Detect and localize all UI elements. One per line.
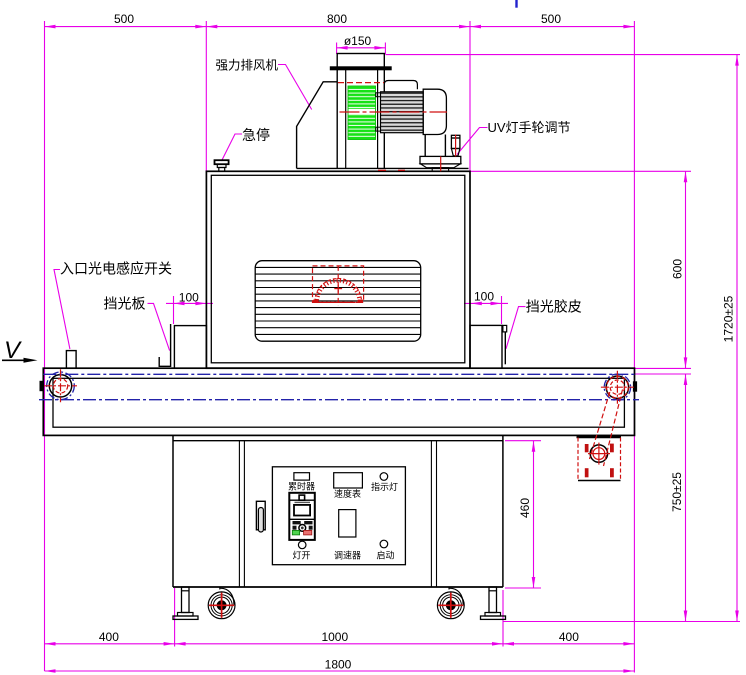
svg-text:1720±25: 1720±25 [722, 295, 736, 342]
svg-text:460: 460 [518, 498, 532, 518]
svg-text:1800: 1800 [325, 657, 352, 671]
svg-text:挡光胶皮: 挡光胶皮 [526, 299, 582, 315]
svg-text:800: 800 [327, 12, 347, 26]
svg-text:500: 500 [114, 12, 134, 26]
svg-text:UV灯手轮调节: UV灯手轮调节 [488, 120, 571, 135]
svg-text:600: 600 [671, 259, 685, 279]
svg-text:100: 100 [179, 290, 199, 304]
svg-text:400: 400 [99, 630, 119, 644]
svg-text:强力排风机: 强力排风机 [216, 59, 279, 73]
svg-text:急停: 急停 [242, 127, 270, 143]
svg-text:灯开: 灯开 [292, 551, 310, 561]
svg-text:750±25: 750±25 [670, 472, 684, 512]
svg-text:启动: 启动 [376, 550, 394, 561]
svg-text:ø150: ø150 [344, 34, 372, 48]
svg-text:挡光板: 挡光板 [104, 296, 146, 312]
svg-text:累时器: 累时器 [288, 480, 315, 491]
svg-text:速度表: 速度表 [334, 488, 361, 499]
svg-text:1000: 1000 [321, 630, 348, 644]
svg-text:入口光电感应开关: 入口光电感应开关 [60, 261, 172, 277]
svg-text:400: 400 [559, 630, 579, 644]
svg-text:指示灯: 指示灯 [371, 481, 398, 492]
svg-text:100: 100 [474, 290, 494, 304]
svg-text:500: 500 [541, 12, 561, 26]
svg-text:调速器: 调速器 [334, 551, 361, 561]
